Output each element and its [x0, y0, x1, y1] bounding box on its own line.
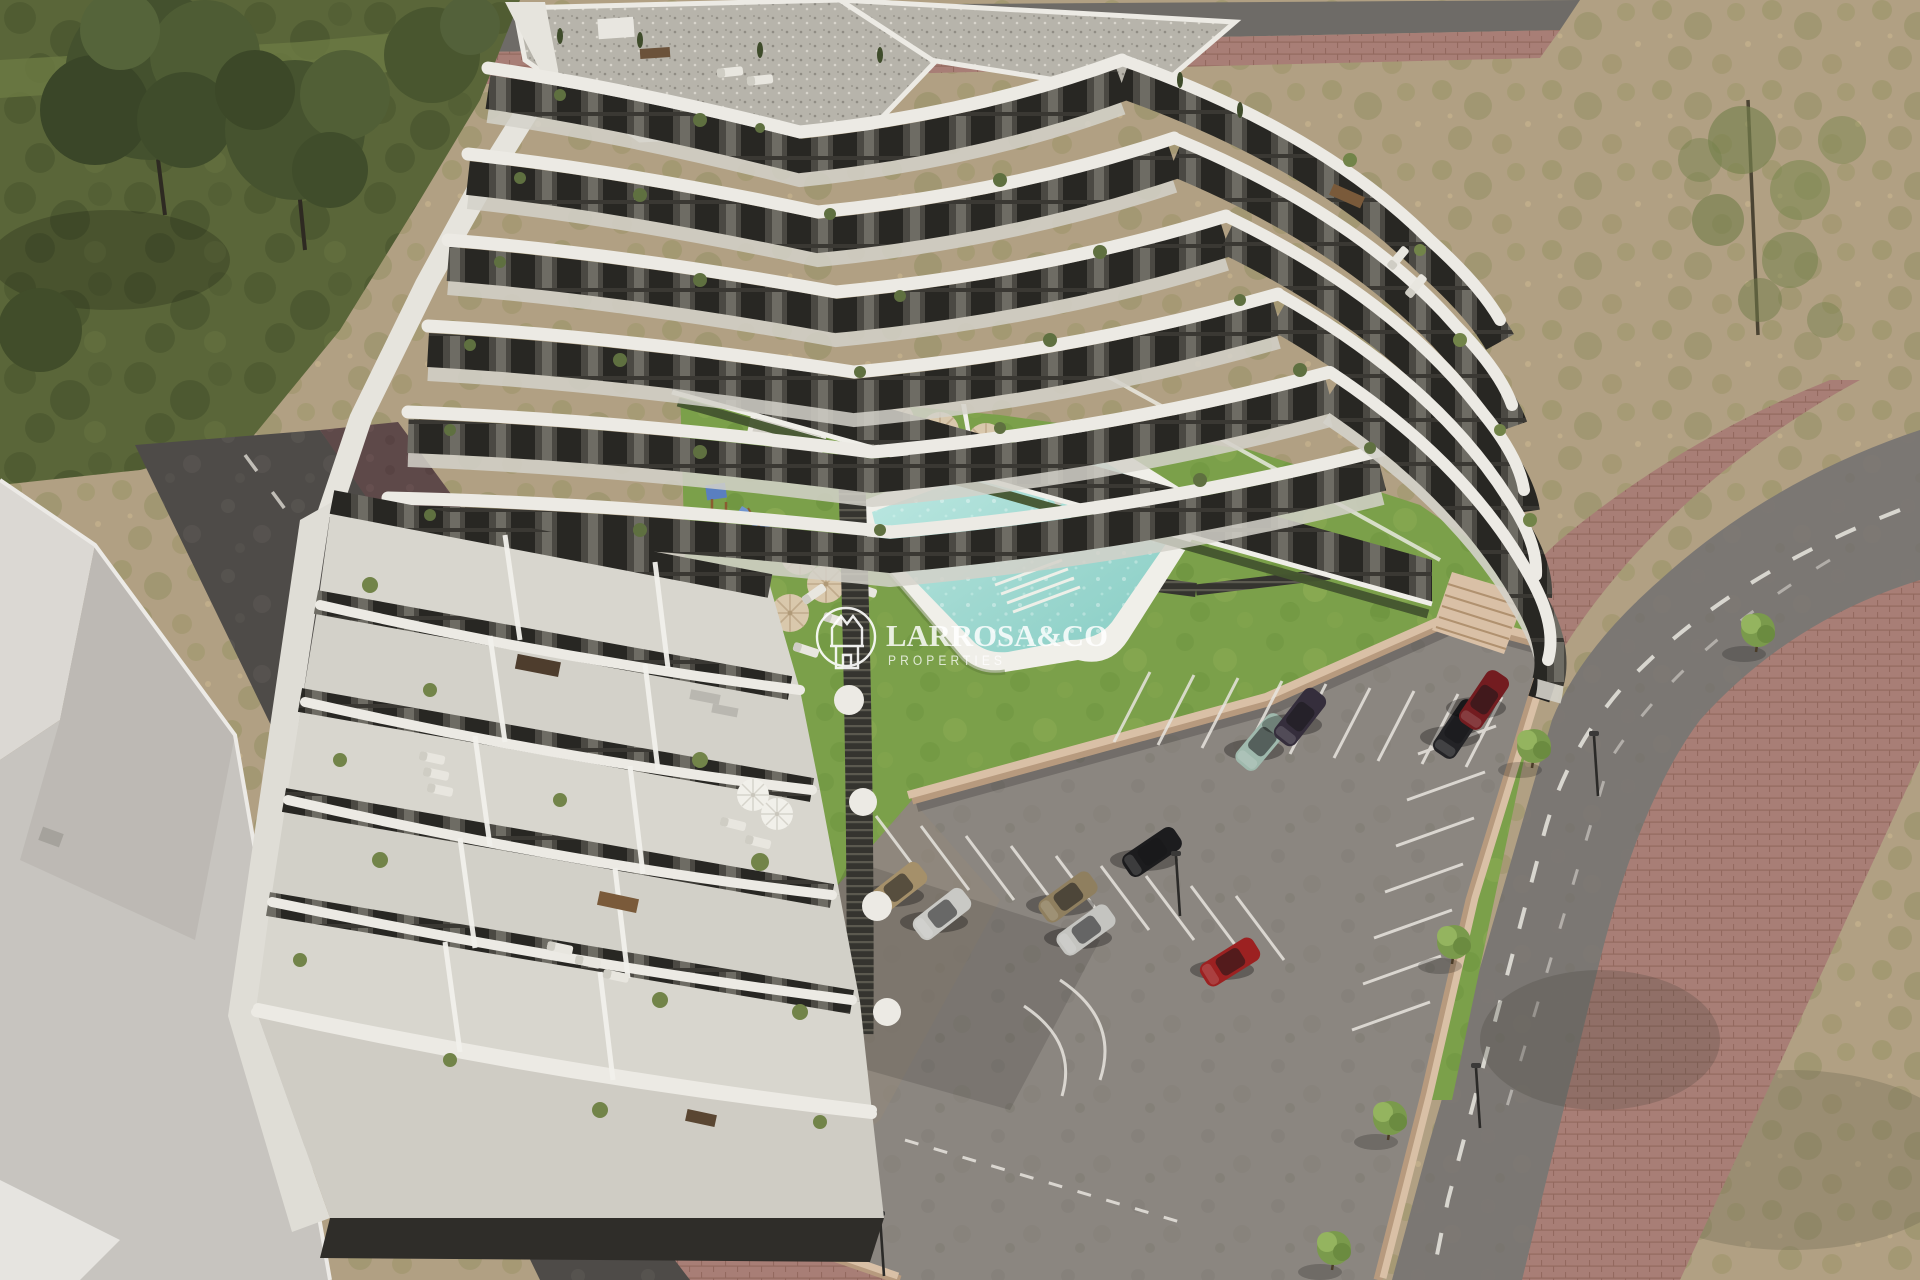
roof-bulkhead: [597, 17, 634, 39]
render-canvas: LARROSA&CO PROPERTIES: [0, 0, 1920, 1280]
watermark-tagline-text: PROPERTIES: [888, 653, 1006, 668]
tree-shadow-on-road: [1480, 970, 1720, 1110]
aerial-render: LARROSA&CO PROPERTIES: [0, 0, 1920, 1280]
shrub: [0, 288, 82, 372]
building-base: [320, 1218, 884, 1262]
roof-table: [640, 47, 671, 59]
white-parasol: [761, 798, 793, 830]
watermark-brand-text: LARROSA&CO: [886, 618, 1108, 653]
